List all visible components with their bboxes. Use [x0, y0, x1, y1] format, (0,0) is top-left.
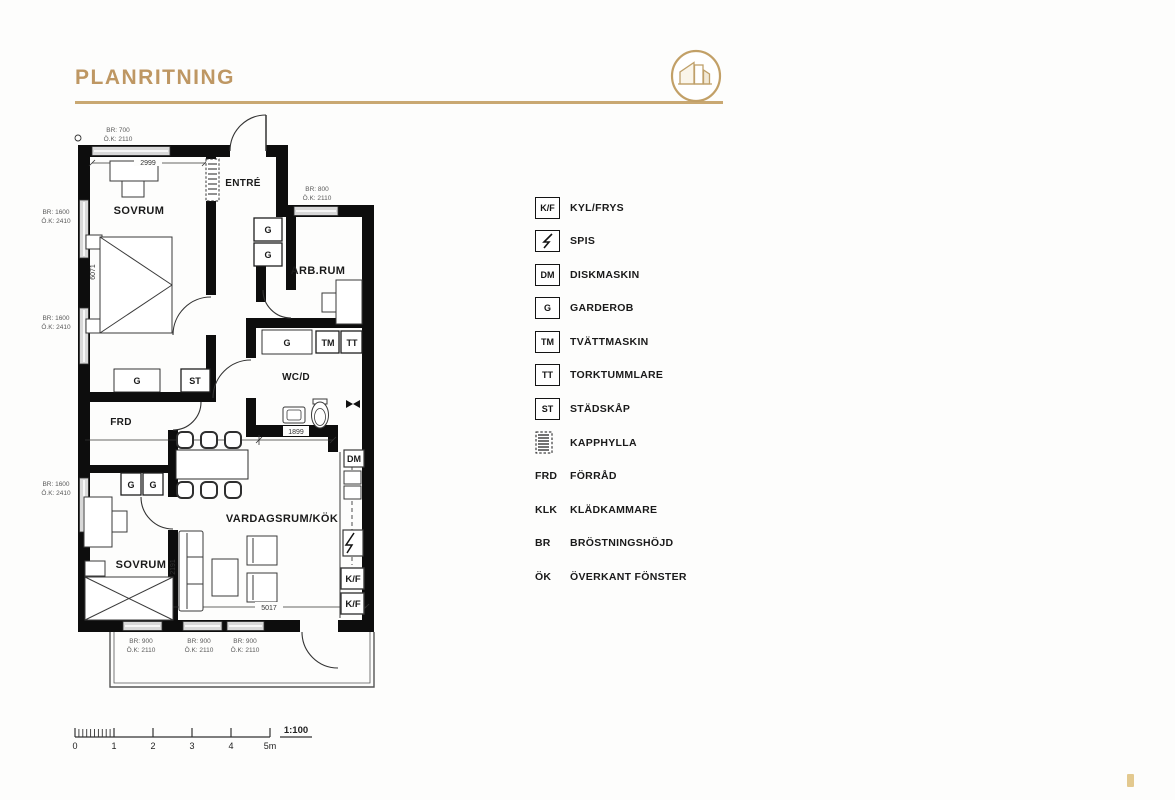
garderob-box-icon: G — [535, 297, 560, 319]
legend-row: DM DISKMASKIN — [535, 264, 785, 285]
wc-fixtures — [283, 399, 360, 428]
sofa — [179, 531, 203, 611]
window-top-abbr: ÖK — [535, 571, 551, 583]
legend-row: G GARDEROB — [535, 298, 785, 319]
svg-text:Ö.K: 2410: Ö.K: 2410 — [41, 217, 71, 225]
svg-text:BR: 1600: BR: 1600 — [42, 209, 69, 216]
svg-text:Ö.K: 2110: Ö.K: 2110 — [185, 646, 214, 654]
svg-text:BR: 1600: BR: 1600 — [42, 481, 69, 488]
svg-text:G: G — [149, 480, 156, 490]
svg-text:Ö.K: 2110: Ö.K: 2110 — [104, 135, 133, 143]
svg-text:6071: 6071 — [90, 264, 97, 280]
svg-text:G: G — [133, 376, 140, 386]
svg-text:1: 1 — [111, 741, 116, 751]
svg-text:BR: 900: BR: 900 — [187, 638, 211, 645]
room-label-living-kitchen: VARDAGSRUM/KÖK — [226, 512, 338, 525]
legend-row: K/F KYL/FRYS — [535, 197, 785, 218]
scale-minor-ticks — [79, 729, 110, 737]
dishwasher-box-icon: DM — [535, 264, 560, 286]
svg-text:ST: ST — [189, 376, 201, 386]
legend-row: BR BRÖSTNINGSHÖJD — [535, 533, 785, 554]
room-label-bedroom2: SOVRUM — [116, 559, 167, 571]
svg-text:Ö.K: 2410: Ö.K: 2410 — [41, 489, 71, 497]
svg-text:DM: DM — [347, 454, 361, 464]
stove-lightning-icon — [539, 232, 557, 250]
wc-door-arc — [213, 360, 251, 398]
door-gaps — [230, 144, 338, 633]
svg-text:4: 4 — [228, 741, 233, 751]
armchair — [247, 573, 277, 602]
svg-text:Ö.K: 2110: Ö.K: 2110 — [127, 646, 156, 654]
workroom-door-arc — [263, 290, 291, 318]
svg-text:3: 3 — [189, 741, 194, 751]
desk — [84, 497, 112, 547]
svg-text:1899: 1899 — [288, 429, 304, 436]
sill-height-abbr: BR — [535, 537, 551, 549]
svg-text:BR: 1600: BR: 1600 — [42, 315, 69, 322]
dining-set — [176, 432, 248, 498]
svg-text:2: 2 — [150, 741, 155, 751]
svg-text:Ö.K: 2110: Ö.K: 2110 — [303, 194, 332, 202]
svg-text:5017: 5017 — [261, 605, 277, 612]
legend-row: TM TVÄTTMASKIN — [535, 331, 785, 352]
walkin-closet-abbr: KLK — [535, 504, 557, 516]
svg-text:2999: 2999 — [140, 160, 156, 167]
storage-door-arc — [173, 402, 201, 430]
bedroom1-furniture — [86, 161, 172, 333]
bedroom1-door-arc — [173, 297, 211, 335]
stove-box-icon — [535, 230, 560, 252]
storage-abbr: FRD — [535, 470, 557, 482]
svg-text:BR: 900: BR: 900 — [233, 638, 257, 645]
legend-row: ST STÄDSKÅP — [535, 399, 785, 420]
legend-row: TT TORKTUMMLARE — [535, 365, 785, 386]
legend-row: FRD FÖRRÅD — [535, 466, 785, 487]
legend-row: KLK KLÄDKAMMARE — [535, 499, 785, 520]
svg-text:Ö.K: 2410: Ö.K: 2410 — [41, 323, 71, 331]
tap-valve-icon — [346, 400, 360, 408]
workroom-furniture — [322, 280, 362, 324]
cleaning-closet-box-icon: ST — [535, 398, 560, 420]
svg-text:BR: 900: BR: 900 — [129, 638, 153, 645]
legend-row: SPIS — [535, 231, 785, 252]
room-label-bedroom1: SOVRUM — [114, 205, 165, 217]
desk-chair — [322, 293, 336, 312]
nightstand — [85, 561, 105, 576]
svg-text:G: G — [127, 480, 134, 490]
room-label-storage: FRD — [110, 417, 131, 428]
svg-text:G: G — [264, 250, 271, 260]
bed — [100, 237, 172, 333]
desk — [336, 280, 362, 324]
svg-text:Ö.K: 2110: Ö.K: 2110 — [231, 646, 260, 654]
toilet — [312, 399, 329, 428]
svg-text:BR: 800: BR: 800 — [305, 186, 329, 193]
coat-rack-icon — [535, 431, 555, 454]
fridge-freezer-box-icon: K/F — [535, 197, 560, 219]
svg-text:K/F: K/F — [345, 574, 361, 585]
washer-box-icon: TM — [535, 331, 560, 353]
svg-text:TT: TT — [347, 338, 358, 348]
svg-text:0: 0 — [72, 741, 77, 751]
bed — [85, 577, 173, 620]
svg-text:2191: 2191 — [170, 559, 177, 575]
patio-door-arc — [302, 632, 338, 668]
svg-text:BR: 700: BR: 700 — [106, 127, 130, 134]
sink — [283, 407, 305, 423]
kitchen-column — [340, 450, 364, 618]
scale-bar: 0 1 2 3 4 5m 1:100 — [72, 725, 312, 751]
kitchen-sink — [344, 471, 361, 499]
room-label-workroom: ARB.RUM — [291, 265, 346, 277]
svg-text:TM: TM — [322, 338, 335, 348]
svg-text:5m: 5m — [264, 741, 277, 751]
legend-row: KAPPHYLLA — [535, 432, 785, 453]
dryer-box-icon: TT — [535, 364, 560, 386]
legend: K/F KYL/FRYS SPIS DM DISKMASKIN G GARDER… — [535, 197, 785, 600]
bedroom2-door-arc — [141, 497, 173, 529]
room-label-wc: WC/D — [282, 372, 310, 383]
scale-ratio: 1:100 — [284, 725, 308, 736]
svg-text:K/F: K/F — [345, 599, 361, 610]
svg-text:G: G — [264, 225, 271, 235]
column-marker — [75, 135, 81, 141]
stove-box — [343, 530, 363, 556]
coffee-table — [212, 559, 238, 596]
svg-text:G: G — [283, 338, 290, 348]
legend-row: ÖK ÖVERKANT FÖNSTER — [535, 567, 785, 588]
page-marker — [1127, 774, 1134, 787]
room-label-entry: ENTRÉ — [225, 176, 260, 189]
coat-rack-icon — [206, 159, 219, 201]
dining-table — [176, 450, 248, 479]
desk-chair — [112, 511, 127, 532]
living-furniture — [179, 531, 277, 611]
armchair — [247, 536, 277, 565]
